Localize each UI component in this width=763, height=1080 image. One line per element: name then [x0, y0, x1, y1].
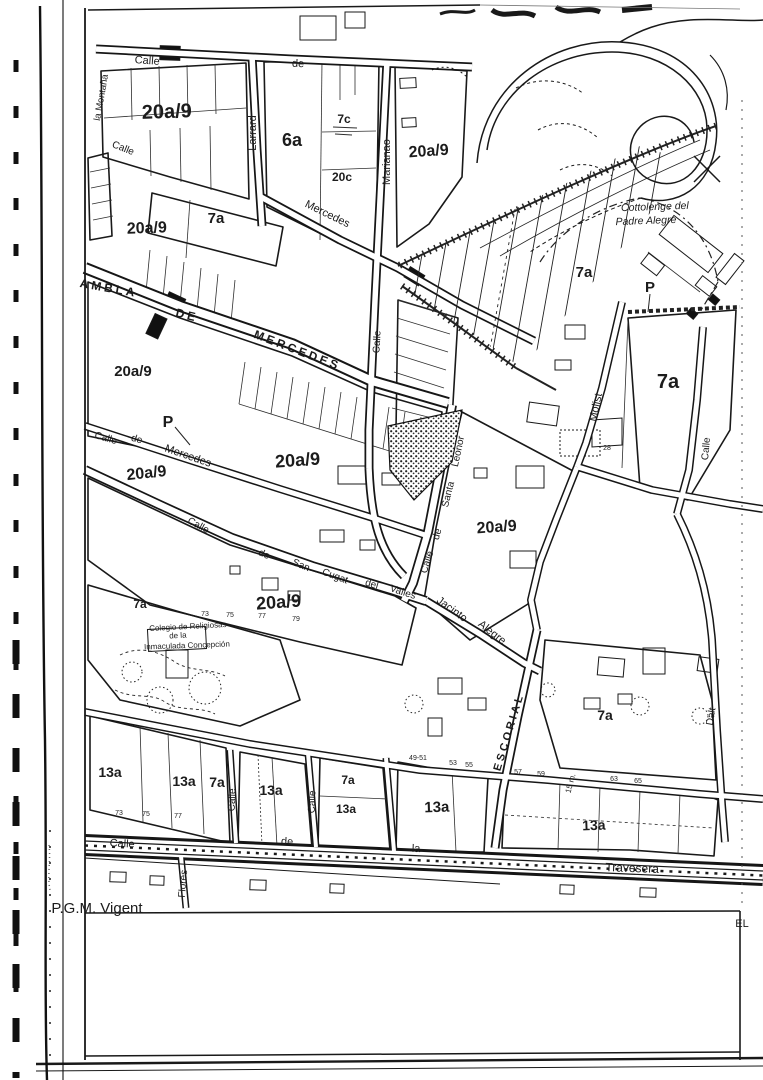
map-label-calle: Calle — [134, 54, 160, 68]
map-label-calle: Calle — [227, 788, 239, 812]
map-label-20a-9: 20a/9 — [255, 590, 301, 613]
map-label-20a-9: 20a/9 — [127, 219, 168, 237]
map-label-p: P — [645, 279, 655, 296]
map-label-75: 75 — [226, 612, 234, 619]
map-label-la: la — [412, 843, 422, 855]
map-label-molist: Molist — [587, 392, 605, 423]
map-label-calle: Calle — [700, 437, 713, 461]
road-surface — [578, 467, 763, 509]
map-label-calle: Calle — [186, 516, 212, 537]
map-label-63: 63 — [610, 776, 618, 783]
map-label-de: de — [431, 527, 445, 541]
map-label-7c: 7c — [337, 112, 351, 126]
map-label-padre-alegre: Padre Alegre — [615, 214, 676, 228]
map-label-13a: 13a — [424, 799, 450, 817]
labels-layer: 20a/920a/920a/920a/920a/920a/920a/920a/9… — [51, 54, 748, 930]
map-label-20a-9: 20a/9 — [126, 463, 168, 484]
frame-top — [88, 5, 480, 10]
map-label-7a: 7a — [341, 773, 355, 787]
map-label-marianao: Marianao — [381, 139, 393, 185]
map-label-73: 73 — [115, 810, 123, 817]
map-label-larrard: Larrard — [247, 115, 259, 150]
map-label-77: 77 — [258, 613, 266, 620]
map-label-cottolenge-del: Cottolenge del — [621, 200, 690, 214]
map-label-p: P — [163, 414, 174, 431]
map-label-6a: 6a — [282, 130, 303, 150]
cut-off-top-marks — [492, 10, 535, 16]
map-label-20a-9: 20a/9 — [476, 518, 517, 538]
footer-divider — [85, 911, 740, 913]
map-label-la-monta-a: la Montaña — [92, 73, 111, 122]
map-label-7a: 7a — [657, 371, 680, 393]
map-label-inmaculada-concepci-n: Inmaculada Concepción — [144, 640, 230, 652]
map-label-de: de — [292, 58, 305, 70]
map-label-mercedes: MERCEDES — [252, 327, 343, 373]
map-label-20a-9: 20a/9 — [141, 100, 192, 124]
scanned-map-sheet: 20a/920a/920a/920a/920a/920a/920a/920a/9… — [0, 0, 763, 1080]
map-label-65: 65 — [634, 778, 642, 785]
map-label-53: 53 — [449, 760, 457, 767]
map-label-49-51: 49-51 — [409, 755, 427, 762]
map-label-28: 28 — [603, 445, 611, 452]
map-label-de: de — [281, 836, 294, 848]
map-label-7a: 7a — [209, 774, 225, 790]
map-label-calle: Calle — [371, 330, 383, 354]
map-label-cugat: Cugat — [320, 567, 349, 587]
map-label-7a: 7a — [133, 597, 147, 611]
map-label-mercedes: Mercedes — [163, 443, 213, 470]
map-label-colegio-de-religiosas: Colegio de Religiosas — [149, 620, 227, 633]
map-label-7a: 7a — [597, 707, 613, 723]
map-label-20a-9: 20a/9 — [114, 363, 152, 380]
map-canvas: 20a/920a/920a/920a/920a/920a/920a/920a/9… — [0, 0, 763, 1080]
map-label-santa: Santa — [440, 480, 457, 508]
map-label-p-g-m-vigent: P.G.M. Vigent — [51, 900, 143, 917]
map-label-13a: 13a — [336, 802, 356, 816]
map-label-20a-9: 20a/9 — [408, 142, 449, 162]
map-label-flores: Flores — [177, 869, 190, 898]
road-casing — [531, 467, 577, 630]
map-label-calle: Calle — [110, 139, 136, 158]
page-bottom-rule — [36, 1058, 763, 1064]
park-curved-roads — [432, 7, 763, 252]
map-label-73: 73 — [201, 611, 209, 618]
map-label-13a: 13a — [172, 773, 196, 789]
map-label-calle: Calle — [307, 790, 319, 814]
map-label-travesera: Travesera — [605, 860, 659, 876]
map-label-13a: 13a — [259, 782, 283, 798]
map-label-calle: Calle — [109, 837, 135, 850]
map-label-79: 79 — [292, 616, 300, 623]
map-label-77: 77 — [174, 813, 182, 820]
map-label-59: 59 — [537, 771, 545, 778]
map-frame — [36, 5, 763, 1071]
map-label-7a: 7a — [576, 264, 593, 281]
map-label-75: 75 — [142, 811, 150, 818]
map-label-57: 57 — [514, 769, 522, 776]
map-label-el: EL — [735, 918, 748, 930]
scan-edge-line — [40, 6, 47, 1080]
map-label-13a: 13a — [98, 764, 122, 780]
map-label-20c: 20c — [332, 170, 352, 184]
map-label-20a-9: 20a/9 — [274, 448, 320, 471]
map-label-55: 55 — [465, 762, 473, 769]
left-margin-marks — [16, 0, 63, 1080]
map-label-de-la: de la — [169, 631, 187, 641]
map-label-7a: 7a — [208, 210, 225, 227]
map-label-13a: 13a — [582, 817, 606, 834]
road-surface — [426, 601, 540, 671]
